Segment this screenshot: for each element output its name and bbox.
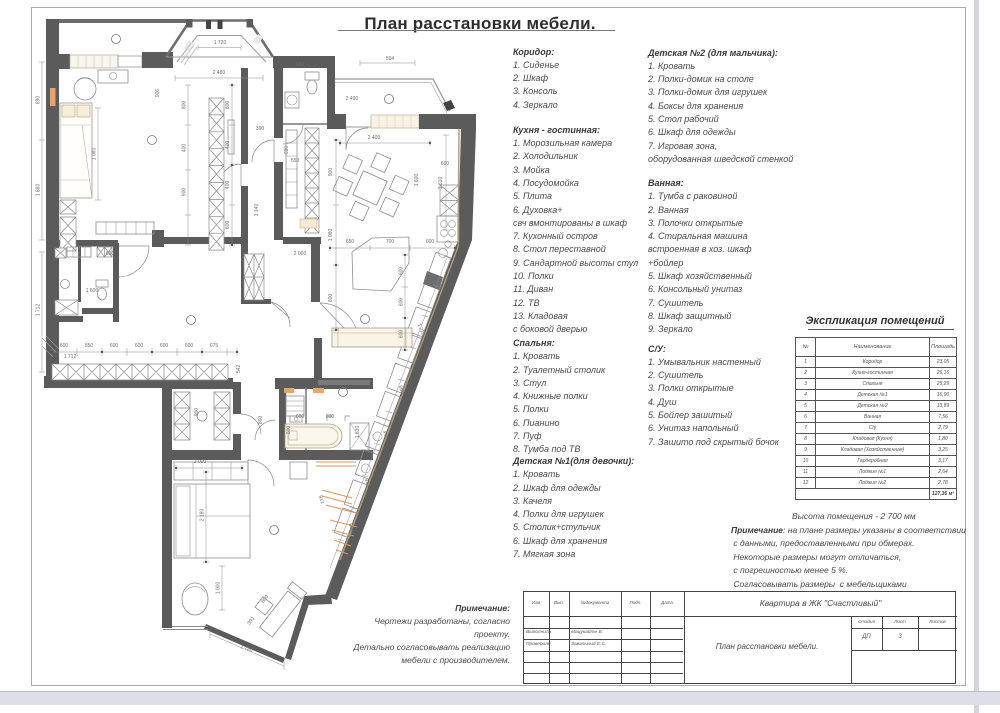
svg-text:1 600: 1 600 bbox=[414, 174, 420, 187]
svg-text:600: 600 bbox=[399, 267, 405, 276]
svg-text:2 180: 2 180 bbox=[200, 509, 206, 522]
svg-text:800: 800 bbox=[182, 101, 188, 110]
svg-text:390: 390 bbox=[256, 126, 265, 132]
svg-text:2 480: 2 480 bbox=[213, 70, 226, 76]
svg-text:600: 600 bbox=[185, 343, 194, 349]
svg-text:690: 690 bbox=[284, 146, 290, 155]
svg-text:600: 600 bbox=[328, 294, 334, 303]
svg-text:600: 600 bbox=[135, 343, 144, 349]
svg-text:600: 600 bbox=[160, 343, 169, 349]
svg-text:400: 400 bbox=[225, 181, 231, 190]
svg-text:1 600: 1 600 bbox=[86, 288, 99, 294]
svg-text:1 720: 1 720 bbox=[214, 40, 227, 46]
svg-text:550: 550 bbox=[291, 158, 300, 164]
svg-text:1 880: 1 880 bbox=[36, 184, 42, 197]
svg-text:700: 700 bbox=[386, 239, 395, 245]
svg-text:400: 400 bbox=[182, 144, 188, 153]
svg-text:600: 600 bbox=[399, 298, 405, 307]
svg-text:890: 890 bbox=[36, 96, 42, 105]
svg-text:600: 600 bbox=[260, 594, 270, 604]
svg-text:600: 600 bbox=[399, 330, 405, 339]
svg-text:1 610: 1 610 bbox=[438, 177, 444, 190]
svg-text:2 000: 2 000 bbox=[294, 251, 307, 257]
svg-text:600: 600 bbox=[296, 414, 305, 420]
svg-text:594: 594 bbox=[386, 56, 395, 62]
svg-text:1 080: 1 080 bbox=[92, 148, 98, 161]
svg-text:900: 900 bbox=[328, 168, 334, 177]
svg-text:600: 600 bbox=[426, 239, 435, 245]
svg-text:300: 300 bbox=[246, 616, 256, 626]
svg-text:900: 900 bbox=[194, 408, 200, 417]
svg-text:600: 600 bbox=[60, 343, 69, 349]
svg-text:1 630: 1 630 bbox=[355, 426, 361, 439]
svg-text:600: 600 bbox=[441, 161, 450, 167]
svg-text:400: 400 bbox=[225, 141, 231, 150]
svg-text:850: 850 bbox=[85, 343, 94, 349]
svg-text:860: 860 bbox=[258, 416, 264, 425]
svg-text:800: 800 bbox=[225, 101, 231, 110]
svg-text:2 490: 2 490 bbox=[346, 96, 359, 102]
svg-text:1 140: 1 140 bbox=[254, 204, 260, 217]
svg-text:890: 890 bbox=[106, 251, 115, 257]
svg-text:1 000: 1 000 bbox=[216, 582, 222, 595]
svg-text:900: 900 bbox=[182, 188, 188, 197]
svg-text:1 080: 1 080 bbox=[328, 229, 334, 242]
svg-text:650: 650 bbox=[346, 239, 355, 245]
svg-text:675: 675 bbox=[210, 343, 219, 349]
svg-text:2 400: 2 400 bbox=[368, 135, 381, 141]
svg-text:1 712: 1 712 bbox=[36, 304, 42, 317]
svg-text:600: 600 bbox=[225, 221, 231, 230]
svg-text:1 712: 1 712 bbox=[64, 354, 77, 360]
svg-text:600: 600 bbox=[286, 426, 292, 435]
svg-text:542: 542 bbox=[236, 365, 242, 374]
svg-text:906: 906 bbox=[155, 89, 161, 98]
svg-text:600: 600 bbox=[110, 343, 119, 349]
svg-text:800: 800 bbox=[326, 414, 335, 420]
svg-text:660: 660 bbox=[296, 62, 305, 68]
svg-text:2 000: 2 000 bbox=[194, 459, 207, 465]
